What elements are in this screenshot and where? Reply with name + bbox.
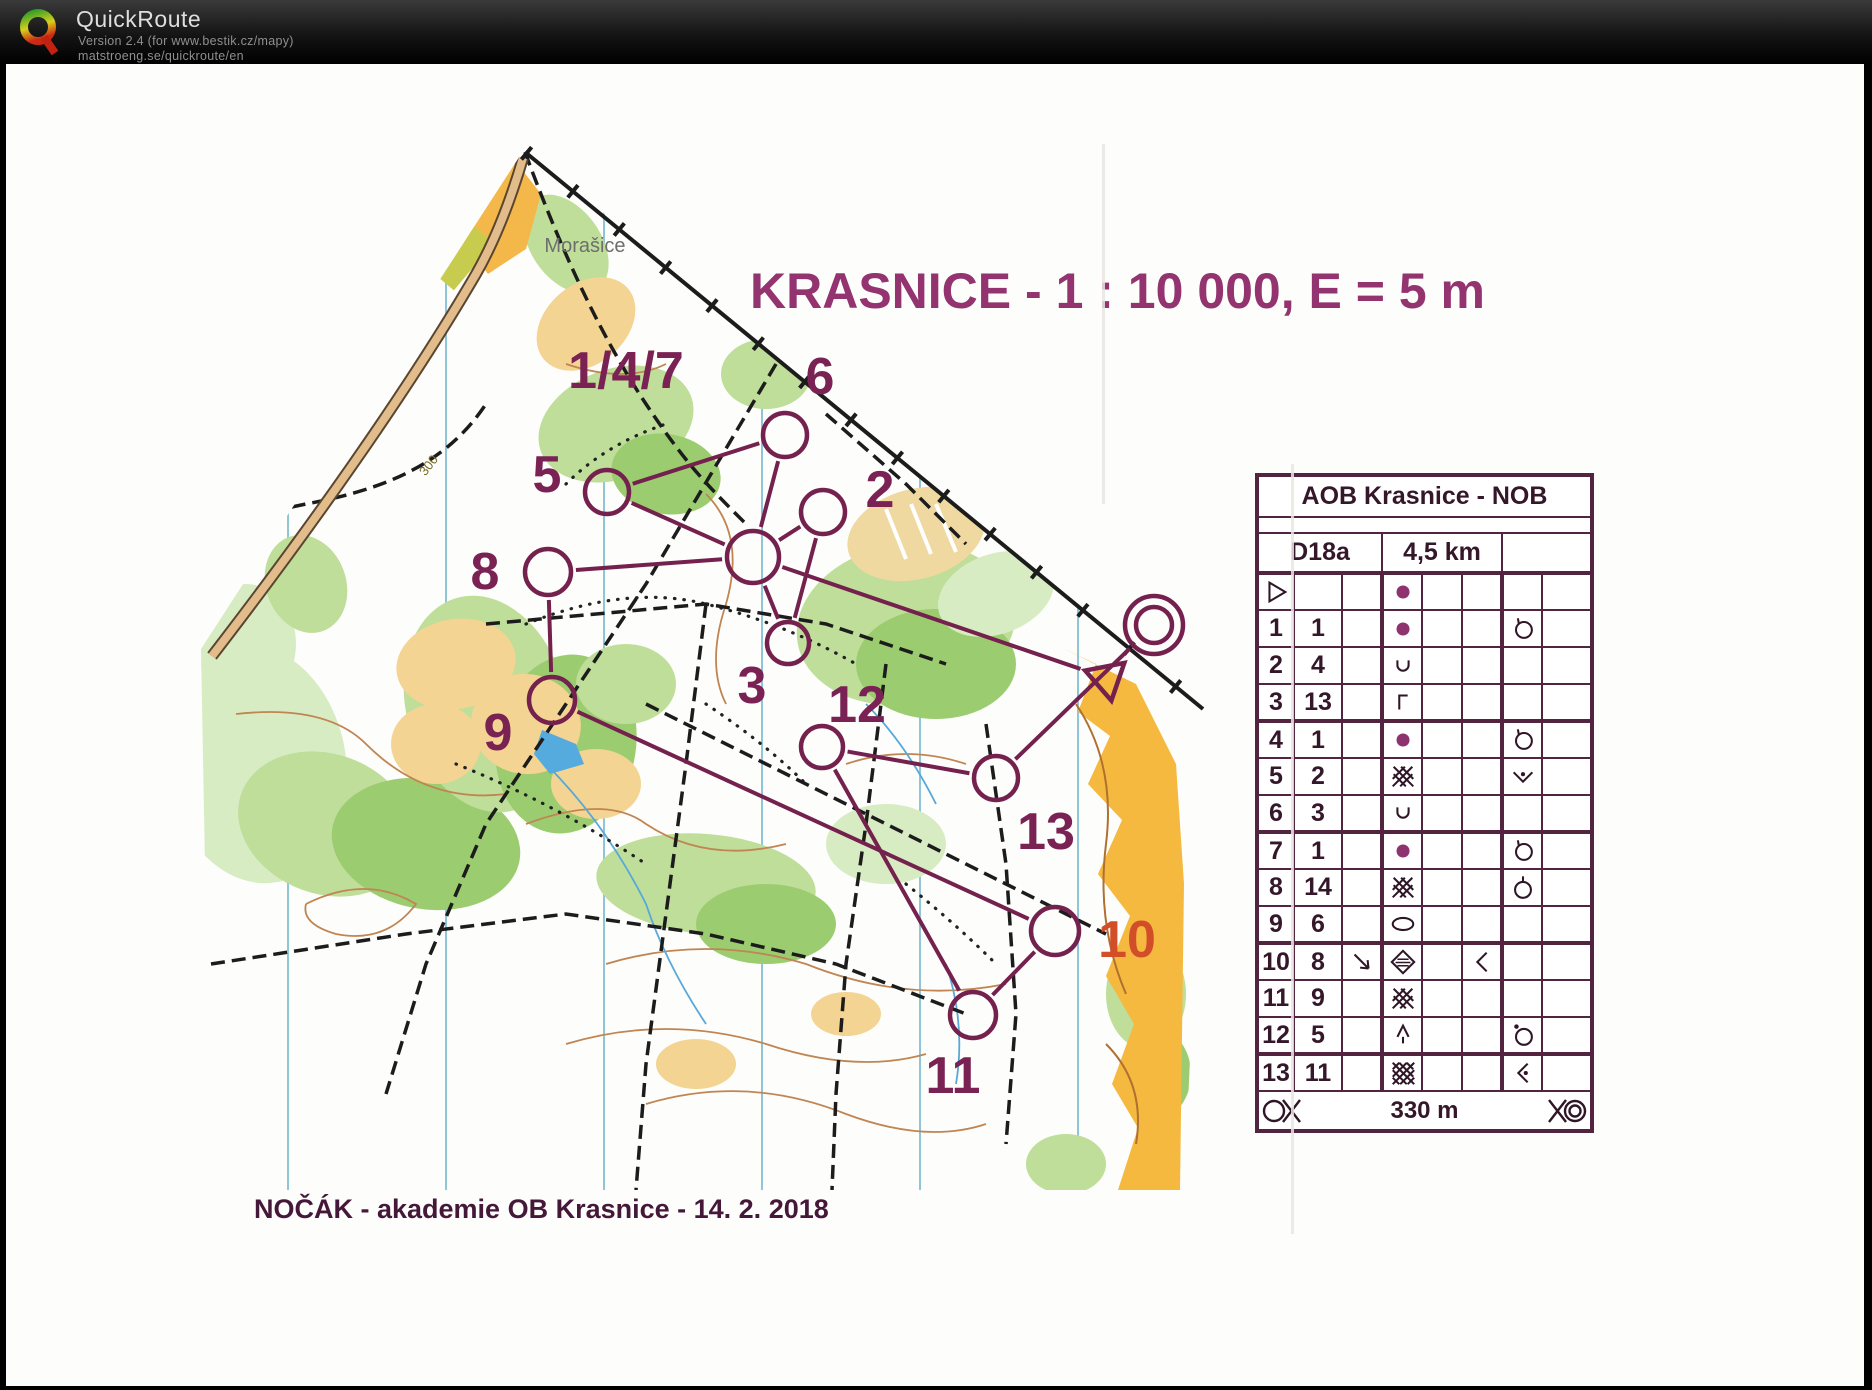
desc-cell-c [1342,1017,1382,1054]
control-label-147: 1/4/7 [568,342,684,400]
description-row-1: 11 [1257,610,1592,647]
desc-cell-g [1502,684,1542,721]
desc-cell-b: 4 [1294,647,1342,684]
desc-cell-h [1542,832,1592,869]
desc-cell-h [1542,573,1592,610]
finish-circle-outer [1125,596,1183,654]
u-cup-icon [1389,799,1417,827]
desc-cell-a: 1 [1257,610,1294,647]
desc-cell-f [1462,1017,1502,1054]
circle-dot-icon [1509,1021,1537,1049]
circle-tick-top-icon [1509,874,1537,902]
desc-cell-d [1382,943,1422,980]
desc-cell-d [1382,573,1422,610]
desc-cell-h [1542,1017,1592,1054]
description-row-3: 313 [1257,684,1592,721]
desc-cell-f [1462,573,1502,610]
desc-cell-f [1462,869,1502,906]
description-row-5: 52 [1257,758,1592,795]
control-label-5: 5 [533,446,562,504]
event-footer-text: NOČÁK - akademie OB Krasnice - 14. 2. 20… [254,1194,829,1225]
start-triangle-icon [1262,578,1290,606]
quickroute-window: QuickRoute Version 2.4 (for www.bestik.c… [0,0,1872,1390]
description-title: AOB Krasnice - NOB [1257,475,1592,517]
desc-cell-a: 9 [1257,906,1294,943]
desc-cell-d [1382,647,1422,684]
desc-cell-c [1342,647,1382,684]
description-row-12: 125 [1257,1017,1592,1054]
desc-cell-c [1342,758,1382,795]
desc-cell-f [1462,906,1502,943]
finish-circle-icon [1541,1094,1587,1128]
desc-cell-d [1382,980,1422,1017]
title-bar: QuickRoute Version 2.4 (for www.bestik.c… [0,0,1872,64]
dot-icon [1389,578,1417,606]
desc-cell-e [1422,869,1462,906]
course-leg [779,527,800,541]
course-leg [576,559,722,570]
description-row-11: 119 [1257,980,1592,1017]
desc-cell-g [1502,906,1542,943]
app-version: Version 2.4 (for www.bestik.cz/mapy) [78,34,294,48]
desc-cell-f [1462,684,1502,721]
dot-icon [1389,615,1417,643]
gamma-icon [1389,688,1417,716]
desc-cell-g [1502,980,1542,1017]
desc-cell-h [1542,980,1592,1017]
control-label-11: 11 [926,1047,981,1105]
desc-cell-f [1462,721,1502,758]
desc-cell-h [1542,795,1592,832]
desc-cell-g [1502,758,1542,795]
desc-cell-c [1342,721,1382,758]
desc-cell-e [1422,906,1462,943]
desc-cell-b: 2 [1294,758,1342,795]
desc-cell-e [1422,647,1462,684]
circle-tick-icon [1509,615,1537,643]
arrow-se-icon [1348,948,1376,976]
desc-cell-b [1294,573,1342,610]
control-label-3: 3 [738,657,767,715]
desc-cell-d [1382,610,1422,647]
control-circle-8 [525,549,571,595]
control-circle-10 [1031,907,1079,955]
circle-tick-icon [1509,726,1537,754]
finish-row: 330 m [1259,1094,1590,1128]
desc-cell-d [1382,758,1422,795]
course-leg [549,600,551,672]
control-description-sheet: AOB Krasnice - NOB D18a 4,5 km 112431341… [1255,473,1594,1133]
description-row-8: 814 [1257,869,1592,906]
desc-cell-b: 6 [1294,906,1342,943]
desc-cell-a: 5 [1257,758,1294,795]
dot-icon [1389,726,1417,754]
desc-cell-c [1342,573,1382,610]
desc-cell-d [1382,721,1422,758]
desc-cell-g [1502,573,1542,610]
map-title: KRASNICE - 1 : 10 000, E = 5 m [750,262,1485,320]
desc-cell-b: 1 [1294,721,1342,758]
dot-icon [1389,837,1417,865]
desc-cell-g [1502,832,1542,869]
desc-cell-e [1422,573,1462,610]
desc-cell-f [1462,1054,1502,1091]
quickroute-logo-icon [14,5,64,59]
desc-cell-b: 14 [1294,869,1342,906]
desc-cell-b: 8 [1294,943,1342,980]
description-spacer [1257,517,1592,533]
desc-cell-c [1342,906,1382,943]
ellipse-icon [1388,910,1418,938]
desc-cell-h [1542,906,1592,943]
desc-cell-d [1382,1054,1422,1091]
desc-cell-e [1422,610,1462,647]
desc-cell-f [1462,610,1502,647]
desc-cell-b: 13 [1294,684,1342,721]
desc-cell-c [1342,832,1382,869]
description-row-13: 1311 [1257,1054,1592,1091]
desc-cell-g [1502,795,1542,832]
crosshatch-icon [1389,874,1417,902]
desc-cell-c [1342,980,1382,1017]
desc-cell-e [1422,758,1462,795]
course-leg [761,461,778,527]
desc-cell-f [1462,943,1502,980]
desc-cell-a: 10 [1257,943,1294,980]
desc-cell-b: 11 [1294,1054,1342,1091]
desc-cell-h [1542,758,1592,795]
desc-cell-g [1502,869,1542,906]
desc-cell-e [1422,1054,1462,1091]
desc-cell-b: 1 [1294,832,1342,869]
desc-cell-e [1422,980,1462,1017]
desc-cell-a: 6 [1257,795,1294,832]
marsh-icon [1389,948,1417,976]
desc-cell-a: 7 [1257,832,1294,869]
control-label-9: 9 [484,704,513,762]
desc-cell-f [1462,647,1502,684]
finish-distance: 330 m [1390,1097,1458,1125]
desc-cell-e [1422,1017,1462,1054]
desc-cell-h [1542,943,1592,980]
desc-cell-g [1502,721,1542,758]
description-row-4: 41 [1257,721,1592,758]
finish-circle-inner [1136,607,1172,643]
desc-cell-g [1502,610,1542,647]
app-title: QuickRoute [76,6,201,33]
desc-cell-d [1382,684,1422,721]
crosshatch-icon [1389,763,1417,791]
control-label-8: 8 [471,543,500,601]
desc-cell-d [1382,906,1422,943]
desc-cell-d [1382,832,1422,869]
desc-cell-c [1342,943,1382,980]
desc-cell-a: 13 [1257,1054,1294,1091]
desc-cell-b: 5 [1294,1017,1342,1054]
desc-cell-a: 11 [1257,980,1294,1017]
control-label-13: 13 [1017,803,1075,861]
class-name: D18a [1257,533,1382,573]
taped-route-start-icon [1262,1094,1308,1128]
description-row-2: 24 [1257,647,1592,684]
desc-cell-h [1542,647,1592,684]
desc-cell-h [1542,610,1592,647]
tree-icon [1389,1021,1417,1049]
angle-left-dot-icon [1509,1059,1537,1087]
desc-cell-c [1342,869,1382,906]
desc-cell-h [1542,684,1592,721]
desc-cell-a: 3 [1257,684,1294,721]
climb-cell [1502,533,1592,573]
control-circle-147 [727,531,779,583]
desc-cell-d [1382,795,1422,832]
control-label-2: 2 [866,461,895,519]
desc-cell-e [1422,795,1462,832]
desc-cell-c [1342,610,1382,647]
desc-cell-c [1342,684,1382,721]
u-cup-icon [1389,652,1417,680]
desc-cell-f [1462,758,1502,795]
desc-cell-b: 9 [1294,980,1342,1017]
desc-cell-e [1422,684,1462,721]
desc-cell-f [1462,795,1502,832]
control-label-12: 12 [828,676,886,734]
control-circle-6 [763,413,807,457]
desc-cell-h [1542,869,1592,906]
angle-left-icon [1468,948,1496,976]
desc-cell-a: 12 [1257,1017,1294,1054]
description-row-9: 96 [1257,906,1592,943]
desc-cell-a: 2 [1257,647,1294,684]
place-label: Morašice [544,235,625,257]
desc-cell-e [1422,721,1462,758]
desc-cell-g [1502,1017,1542,1054]
desc-cell-g [1502,943,1542,980]
desc-cell-b: 3 [1294,795,1342,832]
desc-cell-a: 8 [1257,869,1294,906]
description-row-6: 63 [1257,795,1592,832]
desc-cell-g [1502,1054,1542,1091]
description-row-10: 108 [1257,943,1592,980]
desc-cell-c [1342,795,1382,832]
desc-cell-g [1502,647,1542,684]
control-label-6: 6 [806,348,835,406]
control-circle-2 [801,490,845,534]
desc-cell-e [1422,832,1462,869]
desc-cell-h [1542,1054,1592,1091]
course-length: 4,5 km [1382,533,1502,573]
crosshatch-dense-icon [1389,1059,1417,1087]
app-url: matstroeng.se/quickroute/en [78,49,244,63]
circle-tick-icon [1509,837,1537,865]
desc-cell-c [1342,1054,1382,1091]
desc-cell-f [1462,832,1502,869]
desc-cell-e [1422,943,1462,980]
control-label-10: 10 [1098,911,1156,969]
desc-cell-a: 4 [1257,721,1294,758]
v-dot-icon [1509,763,1537,791]
desc-cell-b: 1 [1294,610,1342,647]
desc-cell-f [1462,980,1502,1017]
crosshatch-icon [1389,985,1417,1013]
scanned-map-page: Morašice 300 1/4/723568910111213 KRASNIC… [6,64,1864,1386]
desc-cell-d [1382,869,1422,906]
description-row-start [1257,573,1592,610]
desc-cell-a [1257,573,1294,610]
desc-cell-h [1542,721,1592,758]
description-row-7: 71 [1257,832,1592,869]
desc-cell-d [1382,1017,1422,1054]
